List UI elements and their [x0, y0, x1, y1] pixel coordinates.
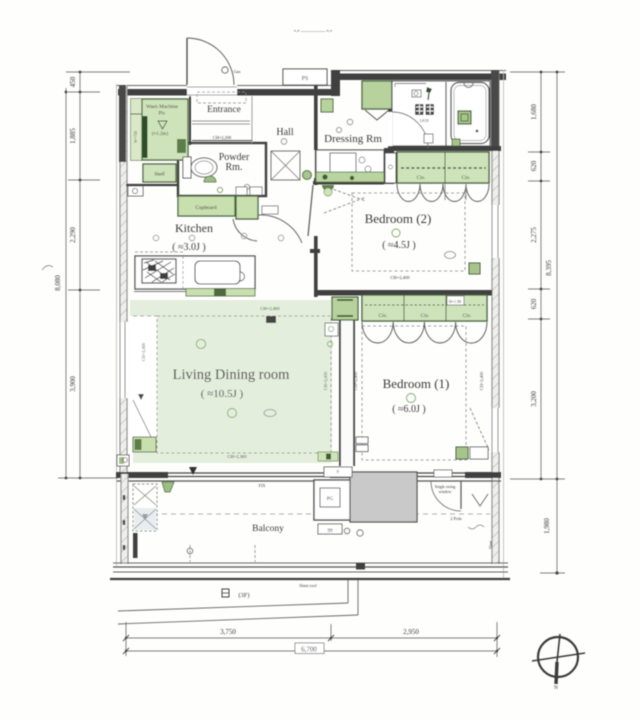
svg-text:3,200: 3,200 — [530, 391, 538, 407]
svg-text:Clo.: Clo. — [463, 313, 472, 319]
svg-text:CH=2,400: CH=2,400 — [390, 275, 410, 281]
svg-text:2,275: 2,275 — [530, 227, 538, 243]
svg-text:( ≈3.0J ): ( ≈3.0J ) — [172, 242, 206, 253]
svg-text:(≈1.2m): (≈1.2m) — [152, 132, 169, 137]
svg-text:450: 450 — [69, 76, 77, 87]
svg-text:Clo.: Clo. — [462, 175, 471, 181]
svg-text:620: 620 — [530, 298, 538, 309]
svg-text:( ≈4.5J ): ( ≈4.5J ) — [382, 240, 416, 251]
svg-text:N: N — [554, 685, 558, 691]
svg-text:PG: PG — [327, 497, 334, 502]
svg-text:( ≈10.5J ): ( ≈10.5J ) — [201, 388, 244, 400]
svg-text:( ≈6.0J ): ( ≈6.0J ) — [392, 404, 426, 415]
svg-text:3,900: 3,900 — [69, 376, 77, 392]
svg-text:Clo.: Clo. — [417, 175, 426, 181]
svg-text:(3F): (3F) — [238, 592, 249, 599]
svg-text:Wash Machine: Wash Machine — [146, 104, 179, 110]
svg-text:Clo.: Clo. — [379, 313, 388, 319]
svg-text:window: window — [439, 489, 452, 494]
svg-text:1,885: 1,885 — [69, 128, 77, 144]
svg-text:6,700: 6,700 — [301, 646, 317, 654]
svg-text:CH=2,400: CH=2,400 — [479, 371, 485, 390]
svg-text:Bedroom (1): Bedroom (1) — [383, 376, 450, 391]
svg-text:Living Dining room: Living Dining room — [173, 367, 291, 383]
svg-text:620: 620 — [530, 160, 538, 171]
svg-text:H=1.98: H=1.98 — [449, 299, 461, 304]
svg-text:Gas: Gas — [234, 69, 241, 74]
svg-text:99: 99 — [328, 529, 334, 534]
svg-text:PS: PS — [302, 76, 309, 82]
svg-text:Shelf: Shelf — [154, 173, 165, 178]
svg-text:8,080: 8,080 — [54, 275, 62, 291]
svg-text:2 Pole: 2 Pole — [450, 516, 462, 521]
svg-text:1,680: 1,680 — [530, 104, 538, 120]
svg-text:Dressing Rm: Dressing Rm — [324, 133, 382, 145]
svg-text:*-* ~~~~~~~~~~~ *-*: *-* ~~~~~~~~~~~ *-* — [294, 29, 332, 34]
svg-text:Rm.: Rm. — [226, 162, 243, 173]
svg-text:Slant roof: Slant roof — [299, 583, 317, 588]
svg-text:2,290: 2,290 — [69, 227, 77, 243]
svg-text:Cupboard: Cupboard — [195, 205, 217, 211]
svg-text:Clo.: Clo. — [421, 313, 430, 319]
svg-text:CH=2,400: CH=2,400 — [353, 371, 359, 390]
svg-text:Balcony: Balcony — [252, 524, 284, 534]
svg-text:W=750: W=750 — [133, 131, 138, 143]
svg-text:Plc: Plc — [159, 111, 166, 117]
svg-text:3,750: 3,750 — [220, 628, 236, 636]
svg-text:Hall: Hall — [276, 127, 293, 138]
svg-text:Bedroom (2): Bedroom (2) — [365, 211, 432, 226]
svg-text:Kitchen: Kitchen — [175, 221, 213, 235]
svg-text:1418: 1418 — [419, 118, 429, 123]
svg-text:2,950: 2,950 — [403, 628, 419, 636]
svg-text:1,980: 1,980 — [543, 518, 551, 534]
svg-text:Slant: Slant — [488, 540, 493, 549]
svg-text:Entrance: Entrance — [207, 105, 241, 115]
svg-text:FIX: FIX — [259, 483, 266, 488]
svg-text:8,395: 8,395 — [545, 260, 553, 276]
